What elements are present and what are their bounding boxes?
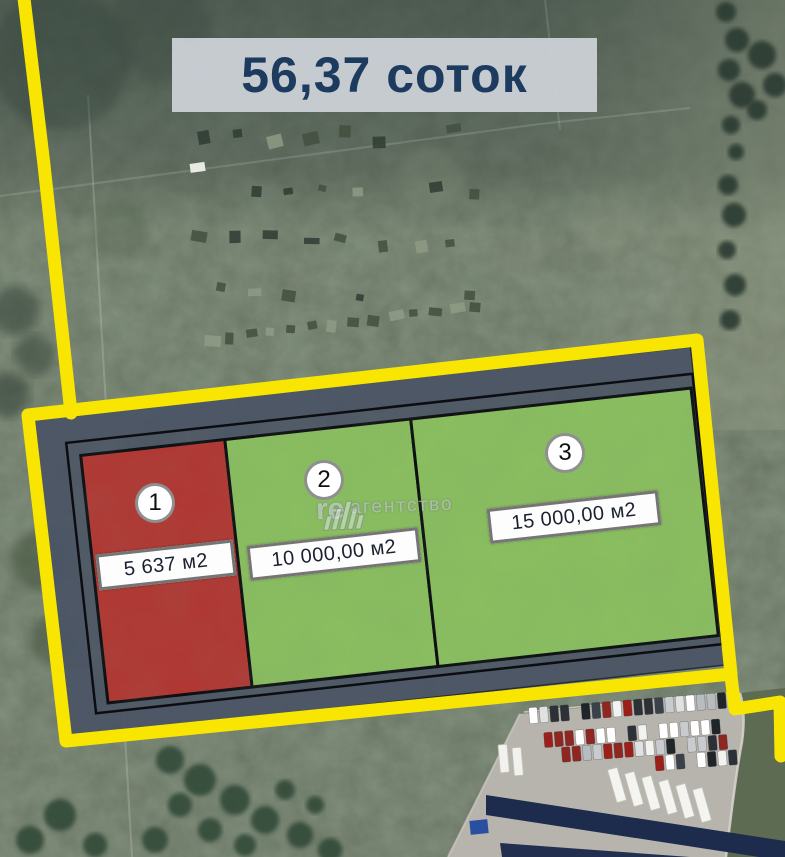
plot-number: 3 xyxy=(558,439,571,467)
total-area-banner: 56,37 соток xyxy=(172,38,597,112)
plot-number: 1 xyxy=(148,489,161,517)
plot-2-number-badge[interactable]: 2 xyxy=(304,460,344,500)
plot-1-number-badge[interactable]: 1 xyxy=(135,483,175,523)
plot-area-text: 5 637 м2 xyxy=(123,549,209,581)
property-boundary-tail-bottom xyxy=(731,676,781,756)
cadastral-overlay xyxy=(0,0,785,857)
plot-number: 2 xyxy=(317,466,330,494)
satellite-map-image: 1 2 3 5 637 м2 10 000,00 м2 15 000,00 м2… xyxy=(0,0,785,857)
plot-3-number-badge[interactable]: 3 xyxy=(545,433,585,473)
total-area-text: 56,37 соток xyxy=(241,46,528,104)
property-boundary-tail-top xyxy=(23,0,71,413)
